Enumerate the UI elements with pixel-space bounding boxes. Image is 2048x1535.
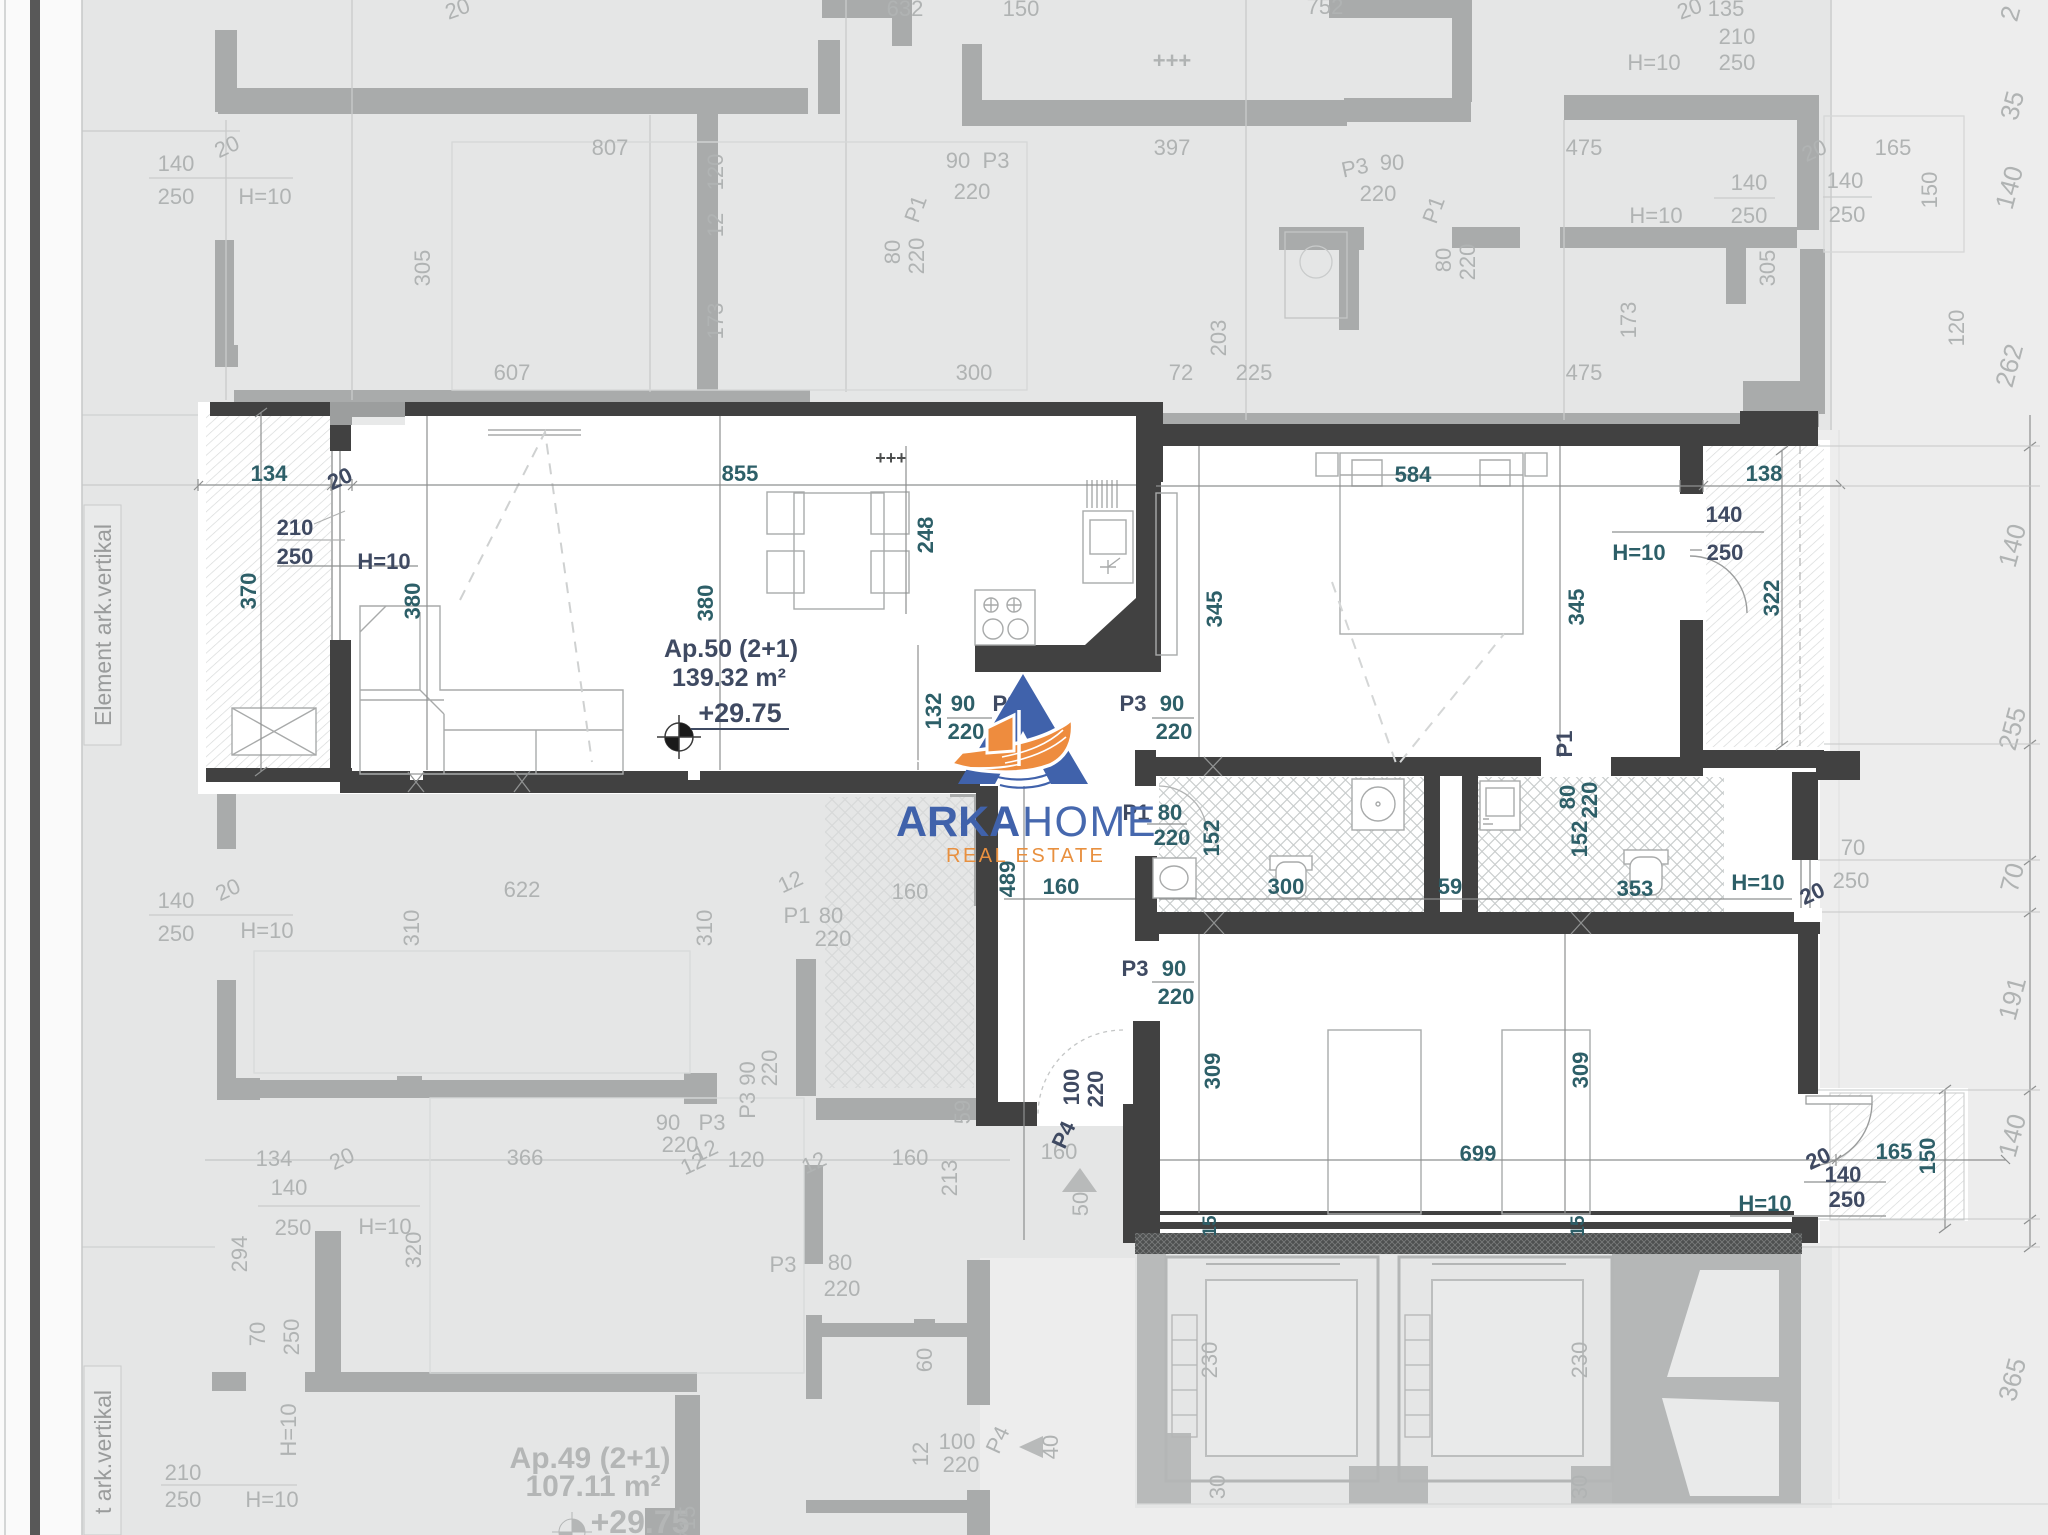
svg-text:225: 225 [1236, 360, 1273, 385]
svg-text:220: 220 [954, 179, 991, 204]
svg-text:345: 345 [1564, 589, 1589, 626]
svg-text:250: 250 [1707, 540, 1744, 565]
svg-text:607: 607 [494, 360, 531, 385]
svg-text:H=10: H=10 [238, 184, 291, 209]
svg-text:100: 100 [1059, 1069, 1084, 1106]
svg-text:210: 210 [277, 515, 314, 540]
svg-text:70: 70 [245, 1322, 270, 1346]
svg-text:310: 310 [399, 910, 424, 947]
svg-text:120: 120 [703, 154, 728, 191]
svg-text:90: 90 [1162, 956, 1186, 981]
svg-text:210: 210 [165, 1460, 202, 1485]
svg-text:107.11 m²: 107.11 m² [525, 1470, 660, 1503]
svg-text:353: 353 [1617, 876, 1654, 901]
svg-text:203: 203 [1206, 320, 1231, 357]
svg-text:230: 230 [1197, 1342, 1222, 1379]
svg-text:139.32 m²: 139.32 m² [672, 664, 786, 692]
svg-text:H=10: H=10 [1612, 540, 1665, 565]
svg-text:220: 220 [904, 238, 929, 275]
svg-text:397: 397 [1154, 135, 1191, 160]
svg-text:220: 220 [824, 1276, 861, 1301]
svg-text:173: 173 [703, 303, 728, 340]
svg-text:P3: P3 [1122, 956, 1149, 981]
svg-text:H=10: H=10 [245, 1487, 298, 1512]
svg-text:P3: P3 [983, 148, 1010, 173]
svg-text:P1: P1 [784, 903, 811, 928]
svg-text:220: 220 [1083, 1071, 1108, 1108]
svg-text:165: 165 [1876, 1139, 1913, 1164]
svg-text:134: 134 [256, 1146, 293, 1171]
svg-text:t ark.vertikal: t ark.vertikal [90, 1390, 116, 1514]
svg-text:ARKA: ARKA [896, 798, 1020, 846]
svg-text:72: 72 [1169, 360, 1193, 385]
svg-text:HOME: HOME [1022, 798, 1157, 846]
svg-text:30: 30 [1567, 1475, 1592, 1499]
svg-text:220: 220 [1577, 782, 1602, 819]
svg-text:165: 165 [1875, 135, 1912, 160]
svg-text:300: 300 [956, 360, 993, 385]
svg-text:250: 250 [1833, 868, 1870, 893]
svg-text:305: 305 [410, 250, 435, 287]
svg-text:P3: P3 [699, 1110, 726, 1135]
svg-text:366: 366 [507, 1145, 544, 1170]
svg-text:90: 90 [1160, 691, 1184, 716]
svg-text:584: 584 [1395, 462, 1432, 487]
svg-text:50: 50 [1068, 1192, 1093, 1216]
svg-text:220: 220 [948, 719, 985, 744]
svg-text:250: 250 [275, 1215, 312, 1240]
svg-text:213: 213 [937, 1160, 962, 1197]
svg-text:220: 220 [943, 1452, 980, 1477]
svg-text:173: 173 [1616, 302, 1641, 339]
svg-text:12: 12 [703, 213, 728, 237]
svg-text:90: 90 [946, 148, 970, 173]
svg-text:140: 140 [1731, 170, 1768, 195]
svg-text:210: 210 [1719, 24, 1756, 49]
svg-text:REAL ESTATE: REAL ESTATE [946, 845, 1105, 867]
svg-text:80: 80 [1158, 800, 1182, 825]
svg-text:P3: P3 [1120, 691, 1147, 716]
svg-text:250: 250 [1731, 203, 1768, 228]
svg-text:250: 250 [277, 544, 314, 569]
svg-text:135: 135 [1708, 0, 1745, 21]
svg-text:60: 60 [912, 1348, 937, 1372]
svg-text:H=10: H=10 [1627, 50, 1680, 75]
svg-text:80: 80 [1431, 248, 1456, 272]
svg-text:250: 250 [1829, 202, 1866, 227]
svg-text:220: 220 [1154, 825, 1191, 850]
svg-text:230: 230 [1567, 1342, 1592, 1379]
svg-text:12: 12 [908, 1442, 933, 1466]
svg-text:15: 15 [1568, 1215, 1589, 1237]
svg-text:250: 250 [158, 921, 195, 946]
svg-text:150: 150 [1917, 172, 1942, 209]
svg-text:30: 30 [1205, 1475, 1230, 1499]
svg-text:250: 250 [1829, 1187, 1866, 1212]
svg-text:294: 294 [227, 1236, 252, 1273]
svg-text:475: 475 [1566, 135, 1603, 160]
svg-text:220: 220 [1360, 181, 1397, 206]
svg-text:309: 309 [1568, 1052, 1593, 1089]
svg-text:632: 632 [887, 0, 924, 21]
svg-text:140: 140 [1825, 1162, 1862, 1187]
svg-text:380: 380 [400, 583, 425, 620]
svg-text:140: 140 [158, 151, 195, 176]
svg-text:70: 70 [1841, 835, 1865, 860]
svg-text:Ap.50 (2+1): Ap.50 (2+1) [664, 635, 798, 663]
svg-text:132: 132 [921, 693, 946, 730]
svg-text:310: 310 [692, 910, 717, 947]
svg-text:250: 250 [1719, 50, 1756, 75]
svg-text:120: 120 [728, 1147, 765, 1172]
svg-text:150: 150 [1003, 0, 1040, 21]
svg-text:140: 140 [1827, 168, 1864, 193]
svg-text:152: 152 [1199, 820, 1224, 857]
svg-text:250: 250 [165, 1487, 202, 1512]
svg-text:300: 300 [1268, 874, 1305, 899]
svg-text:250: 250 [158, 184, 195, 209]
svg-text:160: 160 [892, 879, 929, 904]
svg-text:+++: +++ [1153, 48, 1192, 73]
svg-text:+29.75: +29.75 [698, 698, 781, 728]
svg-text:150: 150 [1915, 1138, 1940, 1175]
svg-text:100: 100 [939, 1429, 976, 1454]
svg-text:807: 807 [592, 135, 629, 160]
svg-text:699: 699 [1460, 1141, 1497, 1166]
svg-text:622: 622 [504, 877, 541, 902]
svg-text:320: 320 [401, 1232, 426, 1269]
svg-text:Element ark.vertikal: Element ark.vertikal [90, 524, 116, 726]
svg-text:220: 220 [1158, 984, 1195, 1009]
svg-text:715: 715 [675, 1506, 700, 1535]
svg-text:80: 80 [880, 240, 905, 264]
svg-text:120: 120 [1944, 310, 1969, 347]
svg-text:H=10: H=10 [357, 549, 410, 574]
svg-text:152: 152 [1567, 821, 1592, 858]
svg-text:380: 380 [693, 585, 718, 622]
svg-text:90: 90 [1380, 150, 1404, 175]
svg-text:80: 80 [819, 903, 843, 928]
svg-text:40: 40 [1038, 1435, 1063, 1459]
svg-text:220: 220 [1455, 244, 1480, 281]
svg-text:140: 140 [1706, 502, 1743, 527]
svg-text:H=10: H=10 [1731, 870, 1784, 895]
svg-text:220: 220 [757, 1050, 782, 1087]
svg-text:752: 752 [1307, 0, 1344, 19]
svg-text:220: 220 [815, 926, 852, 951]
svg-text:160: 160 [1043, 874, 1080, 899]
svg-text:322: 322 [1759, 580, 1784, 617]
svg-text:345: 345 [1202, 591, 1227, 628]
svg-text:H=10: H=10 [276, 1403, 301, 1456]
svg-text:309: 309 [1200, 1053, 1225, 1090]
svg-text:P3: P3 [770, 1252, 797, 1277]
svg-text:220: 220 [1156, 719, 1193, 744]
svg-text:475: 475 [1566, 360, 1603, 385]
svg-text:+++: +++ [875, 448, 907, 468]
svg-text:305: 305 [1755, 250, 1780, 287]
svg-text:59: 59 [950, 1100, 975, 1124]
svg-text:59: 59 [1438, 874, 1462, 899]
svg-text:370: 370 [236, 573, 261, 610]
svg-text:15: 15 [1200, 1215, 1221, 1237]
svg-text:140: 140 [158, 888, 195, 913]
svg-text:250: 250 [279, 1319, 304, 1356]
svg-text:90: 90 [951, 691, 975, 716]
svg-text:138: 138 [1746, 461, 1783, 486]
svg-text:160: 160 [892, 1145, 929, 1170]
svg-text:80: 80 [828, 1250, 852, 1275]
svg-text:134: 134 [251, 461, 288, 486]
svg-text:H=10: H=10 [240, 918, 293, 943]
svg-text:H=10: H=10 [1738, 1191, 1791, 1216]
svg-text:H=10: H=10 [1629, 203, 1682, 228]
svg-text:P1: P1 [1552, 731, 1577, 758]
svg-text:140: 140 [271, 1175, 308, 1200]
svg-text:248: 248 [913, 517, 938, 554]
svg-text:855: 855 [722, 461, 759, 486]
